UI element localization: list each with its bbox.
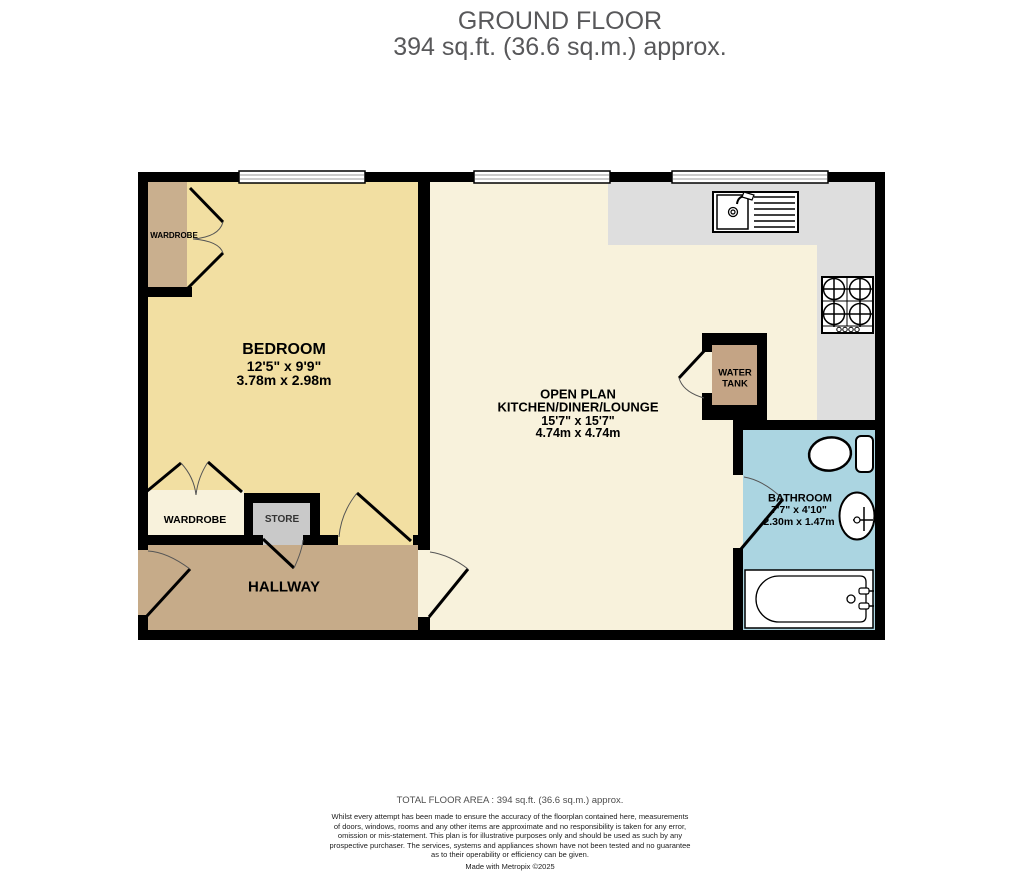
bathtub-icon xyxy=(745,570,874,628)
footer: TOTAL FLOOR AREA : 394 sq.ft. (36.6 sq.m… xyxy=(330,795,691,871)
bedroom-dims-metric: 3.78m x 2.98m xyxy=(237,373,332,387)
hallway-label: HALLWAY xyxy=(248,580,320,595)
windows xyxy=(239,171,828,183)
disclaimer: Whilst every attempt has been made to en… xyxy=(330,812,691,860)
toilet-icon xyxy=(807,435,873,474)
wardrobe-top-label: WARDROBE xyxy=(150,232,198,240)
bedroom-dims-imperial: 12'5" x 9'9" xyxy=(247,359,321,373)
wardrobe-bottom-label: WARDROBE xyxy=(164,515,226,526)
bathroom-dims-imperial: 7'7" x 4'10" xyxy=(771,505,827,516)
bedroom-label: BEDROOM xyxy=(242,342,326,358)
window-kitchen-left xyxy=(474,171,610,183)
bathroom-dims-metric: 2.30m x 1.47m xyxy=(763,517,834,528)
floorplan: GROUND FLOOR 394 sq.ft. (36.6 sq.m.) app… xyxy=(0,0,1020,858)
water-tank-label-line1: WATER xyxy=(718,368,752,378)
disclaimer-line: Whilst every attempt has been made to en… xyxy=(330,812,691,822)
kitchen-sink-icon xyxy=(713,192,798,232)
water-tank-label-line2: TANK xyxy=(722,379,748,389)
basin-icon xyxy=(840,493,875,540)
disclaimer-line: omission or mis-statement. This plan is … xyxy=(330,831,691,841)
window-bedroom xyxy=(239,171,365,183)
total-floor-area: TOTAL FLOOR AREA : 394 sq.ft. (36.6 sq.m… xyxy=(330,795,691,806)
hob-icon xyxy=(821,276,873,333)
disclaimer-line: of doors, windows, rooms and any other i… xyxy=(330,822,691,832)
openplan-dims-metric: 4.74m x 4.74m xyxy=(536,427,621,440)
credit-line: Made with Metropix ©2025 xyxy=(330,862,691,871)
wardrobe-bottom-floor xyxy=(148,490,244,535)
disclaimer-line: prospective purchaser. The services, sys… xyxy=(330,841,691,851)
openplan-label-line2: KITCHEN/DINER/LOUNGE xyxy=(497,401,658,414)
disclaimer-line: as to their operability or efficiency ca… xyxy=(330,850,691,860)
floorplan-drawing xyxy=(0,0,1020,858)
window-kitchen-right xyxy=(672,171,828,183)
store-label: STORE xyxy=(265,515,299,525)
